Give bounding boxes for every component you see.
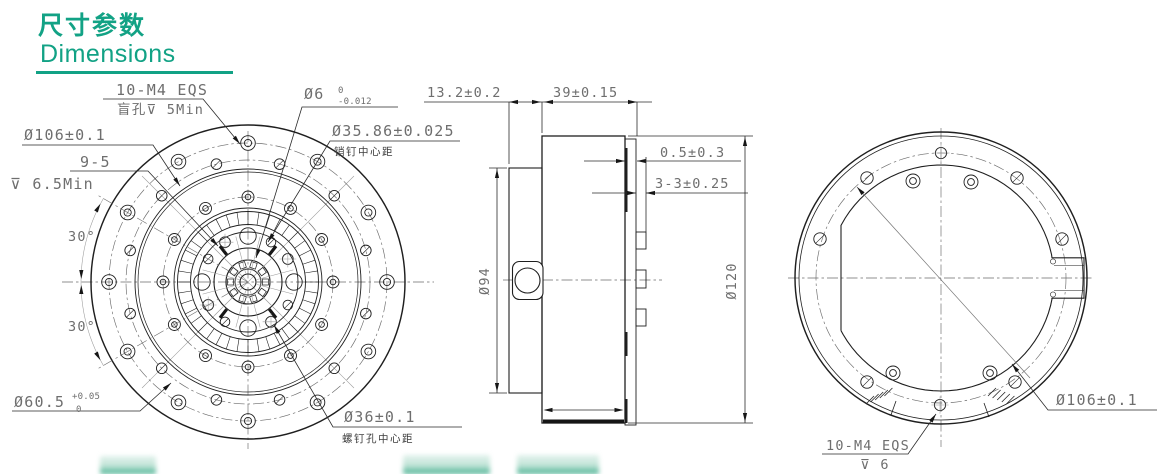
front-hole-count-label: 9-5 (80, 153, 111, 171)
blurred-text-block (403, 455, 490, 474)
front-angle-upper-label: 30° (68, 229, 96, 245)
front-spigot-tol-upper: +0.05 (72, 392, 100, 402)
side-body-dia-label: Ø120 (724, 262, 740, 299)
front-screw-circle-label: Ø36±0.1 (344, 408, 416, 426)
front-angle-lower-label: 30° (68, 319, 96, 335)
side-body-width-label: 39±0.15 (553, 85, 618, 101)
front-hole-depth-label: ⊽ 6.5Min (10, 175, 94, 193)
back-bolt-circle-label: Ø106±0.1 (1056, 391, 1138, 409)
front-bolt-callout-label: 10-M4 EQS (116, 81, 208, 99)
back-bolt-depth-label: ⊽ 6 (860, 457, 890, 473)
blurred-text-block (517, 455, 599, 474)
front-shaft-tol-upper: 0 (338, 86, 344, 96)
dimensions-section: 尺寸参数 Dimensions 10-M4 EQS 盲孔⊽ 5Min Ø6 0 … (0, 0, 1166, 474)
front-pin-note-label: 销钉中心距 (334, 145, 394, 158)
front-screw-note-label: 螺钉孔中心距 (342, 432, 414, 445)
side-tab-label: 3-3±0.25 (655, 176, 730, 192)
front-shaft-dia-label: Ø6 (304, 85, 324, 103)
blurred-text-block (100, 456, 156, 474)
front-bolt-note-label: 盲孔⊽ 5Min (117, 101, 204, 118)
front-flange-circle-label: Ø106±0.1 (24, 126, 106, 144)
back-bolt-callout-label: 10-M4 EQS (826, 438, 910, 454)
technical-drawing: 10-M4 EQS 盲孔⊽ 5Min Ø6 0 -0.012 Ø35.86±0.… (0, 0, 1166, 474)
front-shaft-tol-lower: -0.012 (338, 97, 372, 107)
side-flange-width-label: 13.2±0.2 (427, 85, 502, 101)
front-pin-circle-label: Ø35.86±0.025 (332, 122, 455, 140)
side-gap-label: 0.5±0.3 (660, 145, 725, 161)
front-spigot-tol-lower: 0 (76, 405, 82, 415)
front-spigot-dia-label: Ø60.5 (14, 393, 65, 411)
side-flange-dia-label: Ø94 (477, 267, 493, 295)
